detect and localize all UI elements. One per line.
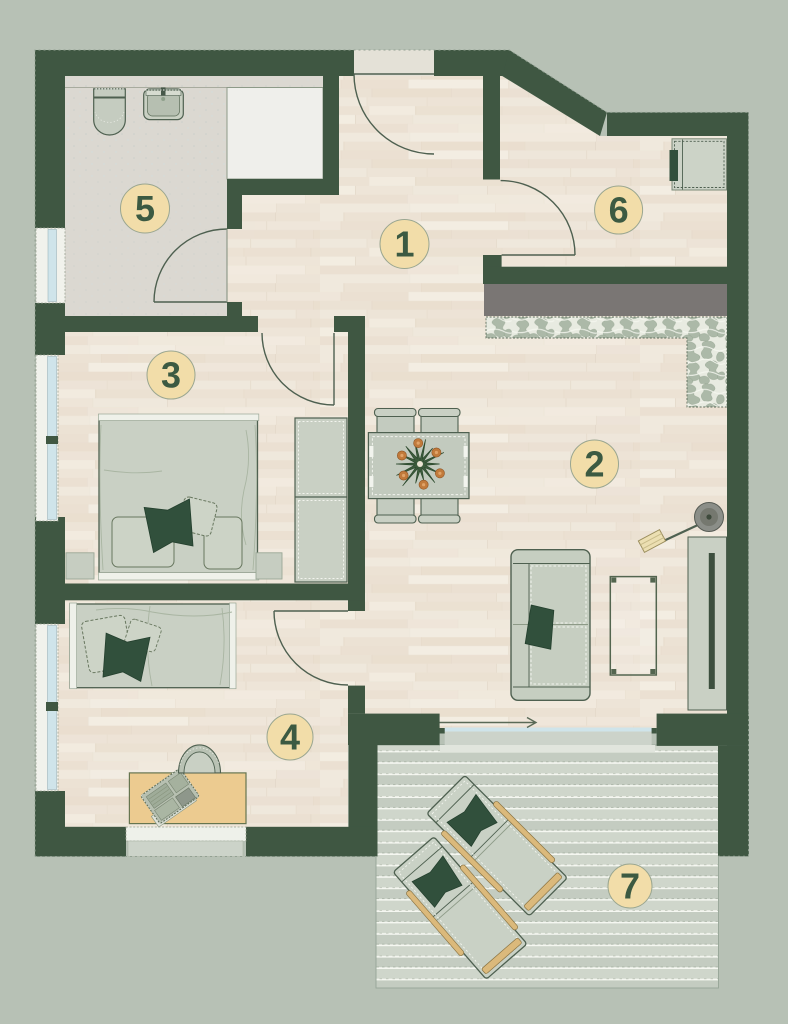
svg-text:7: 7 — [620, 866, 640, 907]
svg-text:1: 1 — [394, 224, 414, 265]
svg-text:2: 2 — [584, 444, 604, 485]
svg-text:3: 3 — [161, 355, 181, 396]
svg-text:6: 6 — [609, 190, 629, 231]
svg-text:4: 4 — [280, 717, 300, 758]
svg-text:5: 5 — [135, 188, 155, 229]
